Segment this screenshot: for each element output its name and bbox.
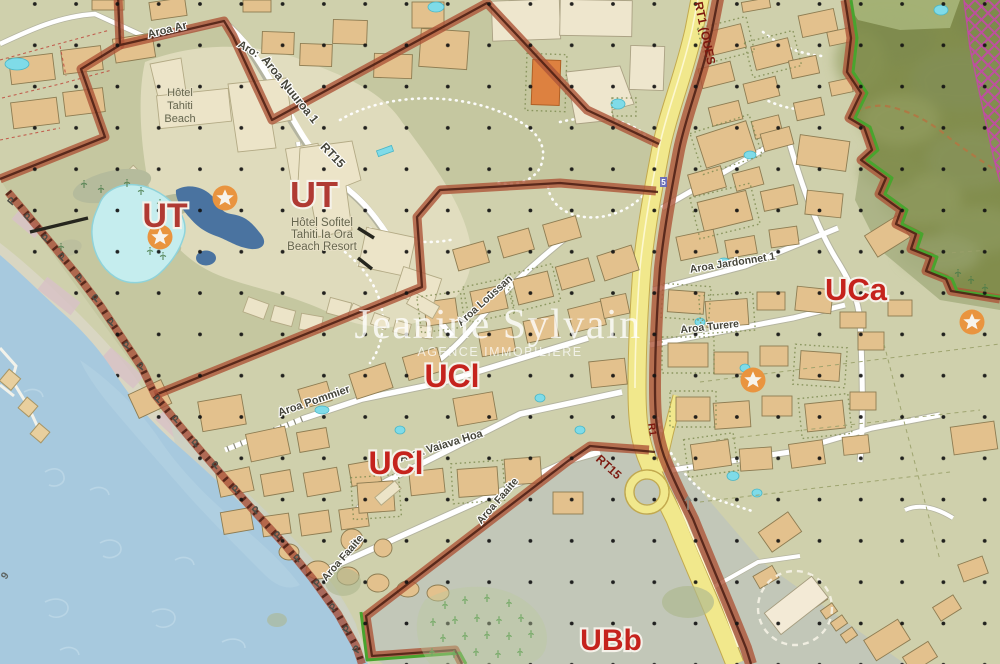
svg-text:Hôtel Sofitel: Hôtel Sofitel [291, 217, 353, 229]
svg-text:5: 5 [661, 178, 666, 187]
svg-text:Tahiti Ia Ora: Tahiti Ia Ora [291, 229, 354, 241]
svg-text:UCl: UCl [424, 358, 479, 394]
svg-text:UBb: UBb [580, 624, 642, 657]
svg-text:UCa: UCa [825, 272, 888, 307]
svg-text:UT: UT [290, 174, 338, 215]
svg-text:R1: R1 [645, 423, 658, 438]
svg-text:Hôtel: Hôtel [167, 87, 193, 99]
svg-text:AGENCE IMMOBILIERE: AGENCE IMMOBILIERE [417, 345, 582, 359]
svg-text:Beach Resort: Beach Resort [287, 241, 357, 253]
svg-text:UT: UT [142, 197, 188, 235]
svg-text:Beach: Beach [164, 113, 195, 125]
svg-text:Tahiti: Tahiti [167, 100, 193, 112]
svg-text:Jeanine Sylvain: Jeanine Sylvain [354, 302, 641, 348]
svg-text:UCl: UCl [368, 445, 423, 481]
